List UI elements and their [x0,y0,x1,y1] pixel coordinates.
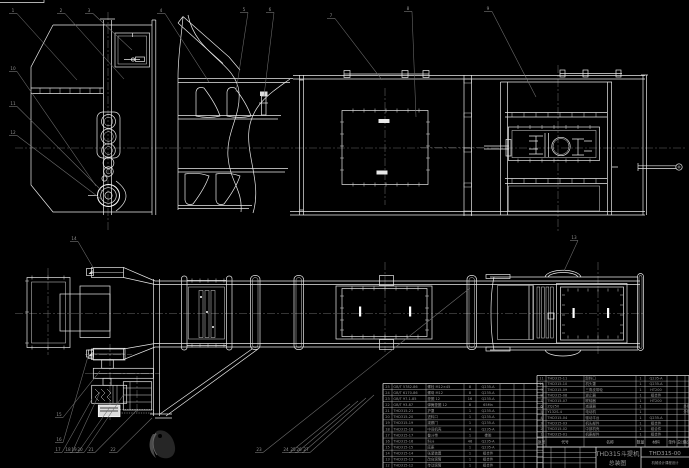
bom-cell: THD315-01 [546,433,567,437]
bom-cell: 卸料口 [585,376,596,381]
bom-cell: 25 [385,385,389,389]
leader-line [290,404,350,453]
bom-cell: GB/T 93-87 [393,403,413,407]
bom-cell: 畚斗带 [427,432,438,437]
bom-cell: THD315-13 [392,458,413,462]
bom-cell: THD315-16 [392,439,413,443]
balloon-number: 6 [269,7,272,12]
bom-cell: THD315-21 [392,409,413,413]
balloon-number: 25 [290,447,296,452]
bom-cell: 14 [385,451,390,455]
bom-cell: 1 [469,451,471,455]
bom-cell: 弹簧垫圈 12 [427,402,447,407]
leader-line [17,14,77,81]
bom-cell: Q235-A [649,382,663,386]
bom-cell: 组合件 [651,426,662,431]
bom-cell: 逆止器 [585,392,596,397]
bom-cell: 螺栓 M12×45 [427,384,450,389]
leader-line [492,12,536,98]
bom-cell: 5 [540,410,542,414]
bom-cell: Q235-A [481,397,495,401]
drive-unit [88,348,258,418]
bom-cell: 23 [385,397,389,401]
cad-drawing-sheet: 1234567891011121314151617181920212223242… [0,0,689,468]
balloon-number: 26 [296,447,302,452]
bom-cell: 17 [385,433,389,437]
balloon-number: 15 [56,412,62,417]
balloon-number: 10 [10,66,16,71]
sheet-frame [0,0,44,3]
bom-cell: 16 [385,439,389,443]
leader-line [264,13,274,97]
bom-cell: HT200 [650,399,661,403]
drawing-number: THD315-00 [648,451,681,457]
bom-cell: THD315-04 [546,416,568,420]
leader-line [17,72,96,187]
bom-cell: 7 [540,399,542,403]
bom-cell: 1 [469,409,471,413]
door-handle [379,119,390,123]
bom-header-cell: 材料 [652,439,660,444]
bom-cell: 11 [539,377,543,381]
bom-cell: THD315-14 [392,451,414,455]
bom-header-cell: 序号 [538,439,546,444]
bom-cell: 驱动平台 [585,415,599,420]
bom-cell: 16 [468,397,472,401]
balloon-number: 20 [77,447,83,452]
elevation-boot [486,270,644,356]
bom-cell: 传动滚筒 [427,463,441,468]
boot-section-view [484,70,682,215]
balloon-number: 18 [65,447,71,452]
leader-line [310,395,374,453]
leader-line [17,107,104,194]
takeup-screw-rod [612,163,682,171]
tension-roller-stack [97,112,120,181]
bom-cell: 46 [468,439,472,443]
balloon-number: 8 [407,6,410,11]
bom-cell: Q235-A [481,439,495,443]
bom-cell: 料斗 [427,438,434,443]
bom-cell: 1 [469,458,471,462]
balloon-number: 2 [60,8,63,13]
gearbox [92,385,127,403]
bom-cell: 1 [469,464,471,468]
head-pulley [88,181,126,211]
bom-cell: 65Mn [483,403,493,407]
balloon-number: 9 [487,6,490,11]
balloon-number: 14 [71,236,77,241]
balloon-number: 1 [12,8,15,13]
bom-cell: 垫圈 12 [427,396,440,401]
bom-cell: 电动机 [585,409,596,414]
leader-line [63,353,89,443]
bom-cell: 1 [639,382,641,386]
bom-cell: 1 [639,410,641,414]
bom-cell: 机头部件 [585,420,599,425]
bom-cell: 8 [540,393,542,397]
bom-cell: 组合件 [651,432,662,437]
bom-cell: 组合件 [483,457,494,462]
bom-cell: 1 [639,399,641,403]
bom-cell: THD315-08 [546,393,567,397]
bom-cell: GB/T 6170-86 [393,391,417,395]
bolted-section [182,276,233,350]
bom-cell: 外购 [684,409,689,414]
balloon-number: 13 [571,235,577,240]
leader-line [236,13,248,93]
watermark-logo [150,430,176,458]
bom-cell: THD315-02 [546,427,567,431]
drawing-type: 总装图 [609,459,627,467]
bom-cell: 螺母 M12 [427,390,443,395]
balloon-number: 11 [10,101,16,106]
bom-cell: HT200 [650,388,661,392]
elevation-head-box [25,276,110,350]
bom-cell: 中部机壳 [585,426,599,431]
bom-cell: 13 [385,458,389,462]
leader-line [117,418,152,453]
bom-cell: GB/T 97.1-85 [393,397,416,401]
bom-cell: 8 [469,391,471,395]
bom-cell: 机座部件 [585,432,599,437]
leader-line [78,242,94,270]
door-handle [377,171,388,175]
bom-cell: THD315-11 [546,377,567,381]
bom-cell: 中间机壳 [427,426,441,431]
bom-cell: 1 [469,433,471,437]
elevation-inspection-door [336,276,432,350]
bom-cell: 组合件 [651,420,662,425]
balloon-number: 4 [160,8,163,13]
bom-cell: 9 [540,388,542,392]
bom-cell: 减速器 [585,404,596,409]
balloon-number: 7 [330,13,333,18]
bom-cell: 1 [469,415,471,419]
bom-cell: Q235-A [481,385,495,389]
bom-cell: THD315-19 [392,421,413,425]
bom-cell: 24 [385,391,390,395]
bom-cell: 三角皮带轮 [585,387,603,392]
bom-cell: THD315-18 [392,427,413,431]
bom-cell: 1 [639,393,641,397]
bom-cell: 4 [469,427,472,431]
bom-cell: 3 [540,421,542,425]
leader-line [297,401,358,453]
balloon-number: 16 [56,437,62,442]
bom-cell: 改向滚筒 [427,457,441,462]
bom-cell: Q235-A [481,415,495,419]
bom-cell: 6 [540,405,542,409]
bom-cell: THD315-10 [546,382,567,386]
bom-cell: Y132S-4 [547,410,562,414]
leader-line [564,241,578,272]
leader-line [62,399,92,453]
balloon-number: 23 [256,447,262,452]
bom-cell: 19 [385,421,389,425]
bom-cell: 组合件 [651,392,662,397]
title-block: THD315斗提机 总装图 THD315-00 机械设计课程设计 [537,447,689,468]
bom-cell: 1 [639,421,641,425]
bom-cell: 8 [469,403,471,407]
bom-cell: 15 [385,445,389,449]
bom-cell: 8 [469,385,471,389]
bom-header-cell: 单件 [668,439,676,444]
bom-cell: 21 [385,409,389,413]
leader-line [165,14,209,83]
parts-list-left: 25GB/T 5782-86螺栓 M12×458Q235-A24GB/T 617… [383,384,543,468]
bom-cell: 18 [385,427,389,431]
balloon-number: 22 [110,447,116,452]
balloon-number: 3 [88,8,91,13]
bucket-shapes [185,88,251,205]
head-section-view [31,15,293,215]
parts-list-right: 11THD315-11卸料口1Q235-A10THD315-10机头罩1Q235… [537,376,689,448]
balloon-number: 17 [55,447,61,452]
bom-header-cell: 数量 [637,439,645,444]
bom-cell: 底座 [427,444,434,449]
balloon-number: 19 [71,447,77,452]
leader-line [335,19,382,81]
bom-cell: THD315-15 [392,445,413,449]
head-inspection-window [115,33,150,67]
bom-cell: Q235-A [649,416,663,420]
bom-cell: 1 [639,377,641,381]
bom-cell: THD315-03 [546,421,567,425]
bom-cell: 张紧装置 [427,450,441,455]
bom-cell: 20 [385,415,389,419]
bom-cell: 1 [639,388,641,392]
middle-casing-view [290,71,645,217]
organization: 机械设计课程设计 [651,460,679,465]
bom-cell: 1 [639,433,641,437]
bom-cell: 1 [469,445,471,449]
balloon-number: 12 [10,130,16,135]
bom-cell: 橡胶 [485,432,493,437]
bom-cell: 进料口 [427,414,438,419]
bom-cell: Q235-A [481,445,495,449]
balloon-number: 24 [283,447,289,452]
bom-cell: Q235-A [481,391,495,395]
bom-cell: 1 [639,405,641,409]
bom-cell: 联轴器 [585,398,596,403]
bom-cell: THD315-12 [392,464,413,468]
bom-cell: 2 [540,427,542,431]
bom-cell: THD315-09 [546,388,567,392]
balloon-number: 21 [88,447,94,452]
bom-cell: 10 [539,382,543,386]
bom-cell: Q235-A [481,427,495,431]
leader-line [412,12,416,118]
product-name: THD315斗提机 [595,450,640,458]
bom-cell: 观察门 [427,420,438,425]
bom-header-cell: 备注 [683,439,689,444]
bom-cell: 1 [639,416,641,420]
bom-cell: Q235-A [481,409,495,413]
leader-line [303,398,366,453]
bom-header-cell: 代号 [561,439,569,444]
bom-header-cell: 名称 [606,439,614,444]
balloon-number: 27 [303,447,309,452]
bom-cell: 12 [385,464,389,468]
bom-cell: 护罩 [427,408,434,413]
bom-cell: ZQ250 [547,405,559,409]
bom-cell: Q235-A [481,421,495,425]
bom-cell: 外购 [684,404,689,409]
bom-cell: 1 [639,427,641,431]
bom-cell: 1 [540,433,542,437]
bom-cell: 22 [385,403,389,407]
bom-cell: GB/T 5782-86 [393,385,417,389]
bom-cell: THD315-20 [392,415,413,419]
bom-cell: 机头罩 [585,381,596,386]
bom-cell: 组合件 [483,463,494,468]
bom-cell: 组合件 [483,450,494,455]
balloon-number: 5 [243,7,246,12]
bucket-bolt-detail [259,92,268,116]
bom-cell: THD315-17 [392,433,413,437]
leader-line [17,136,101,200]
bom-cell: Q235-A [649,377,663,381]
bom-cell: THD315-07 [546,399,567,403]
casing-flange-rings [251,276,477,350]
bom-cell: 1 [469,421,471,425]
